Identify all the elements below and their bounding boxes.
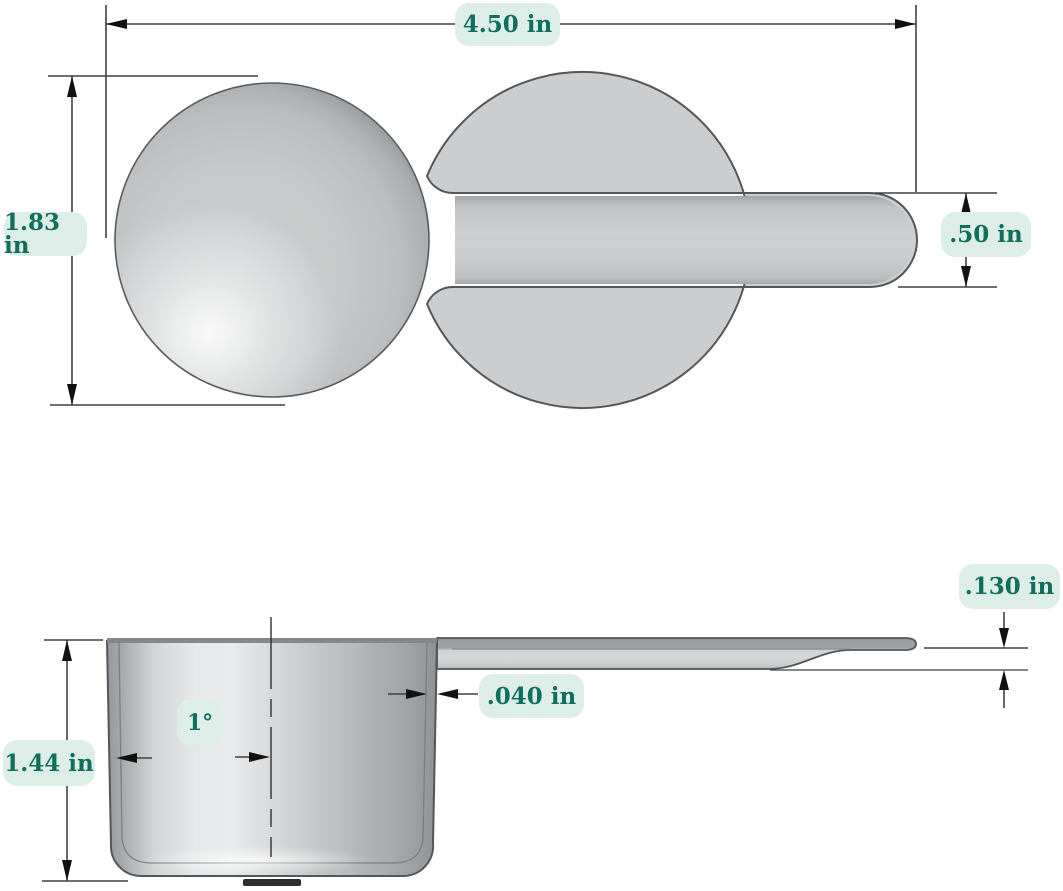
dim-label-cup-height: 1.44 in	[3, 740, 95, 786]
arrowhead	[67, 76, 77, 97]
arrowhead	[106, 19, 127, 29]
arrowhead	[999, 670, 1009, 690]
cup-body	[107, 641, 437, 876]
arrowhead	[437, 689, 458, 699]
arrowhead	[895, 19, 916, 29]
cup-floor-highlight	[140, 846, 370, 874]
dim-label-total-length: 4.50 in	[455, 3, 560, 46]
dim-label-bowl-diameter: 1.83 in	[4, 212, 87, 256]
arrowhead	[67, 384, 77, 405]
arrowhead	[62, 860, 72, 881]
handle-side-view	[437, 638, 916, 669]
drawing-canvas: 4.50 in 1.83 in .50 in .130 in .040 in 1…	[0, 0, 1063, 891]
scoop-side-view	[107, 617, 916, 886]
dim-label-draft-angle: 1°	[177, 699, 223, 746]
bowl-highlight	[116, 84, 428, 396]
gate-tab	[243, 879, 301, 886]
scoop-top-view	[115, 72, 917, 408]
dim-label-handle-width: .50 in	[941, 212, 1031, 257]
arrowhead	[62, 640, 72, 661]
arrowhead	[999, 628, 1009, 648]
cup-rim-edge	[107, 638, 437, 643]
dim-label-handle-thickness: .130 in	[959, 564, 1060, 609]
technical-drawing	[0, 0, 1063, 891]
dim-label-wall-thickness: .040 in	[479, 674, 584, 718]
handle-top-view	[455, 196, 913, 284]
arrowhead	[961, 193, 971, 214]
arrowhead	[961, 266, 971, 287]
